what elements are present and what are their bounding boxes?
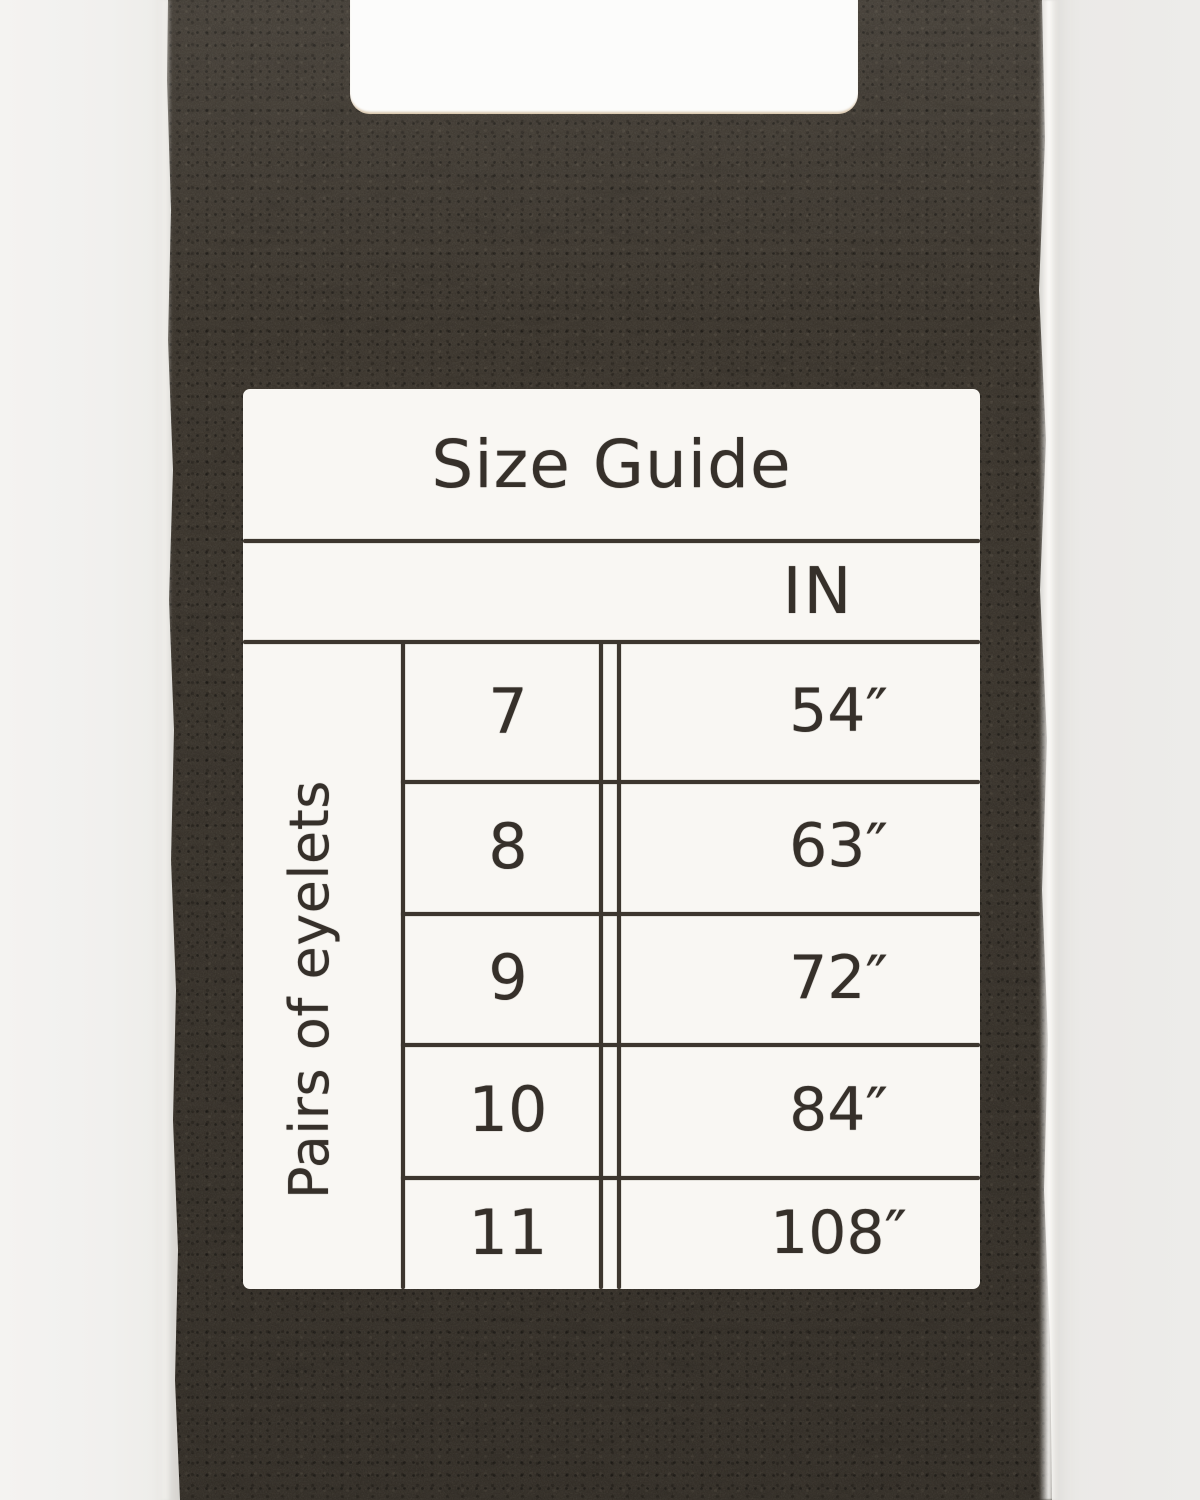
row-axis-label: Pairs of eyelets	[278, 780, 341, 1199]
eyelets-cell: 7	[411, 642, 605, 780]
double-divider-line-2	[617, 642, 621, 1289]
strap-right-edge-highlight	[1039, 0, 1058, 1500]
inches-cell: 108″	[659, 1176, 1018, 1289]
photo-stage: Size Guide IN Pairs of eyelets 7 8 9 10 …	[0, 0, 1200, 1500]
inches-cell: 72″	[659, 912, 1018, 1043]
row-axis-label-column: Pairs of eyelets	[243, 642, 401, 1289]
inches-cell: 84″	[659, 1043, 1018, 1176]
hanger-cutout	[350, 0, 858, 114]
column-divider-line	[401, 642, 405, 1289]
inches-cell: 54″	[659, 642, 1018, 780]
inches-cell: 63″	[659, 780, 1018, 912]
strap-left-edge-highlight	[157, 0, 172, 1500]
eyelets-cell: 8	[411, 780, 605, 912]
size-guide-card: Size Guide IN Pairs of eyelets 7 8 9 10 …	[243, 389, 980, 1289]
unit-header-in: IN	[639, 543, 997, 640]
eyelets-cell: 11	[411, 1176, 605, 1289]
size-guide-title: Size Guide	[243, 389, 980, 539]
eyelets-cell: 9	[411, 912, 605, 1043]
eyelets-cell: 10	[411, 1043, 605, 1176]
